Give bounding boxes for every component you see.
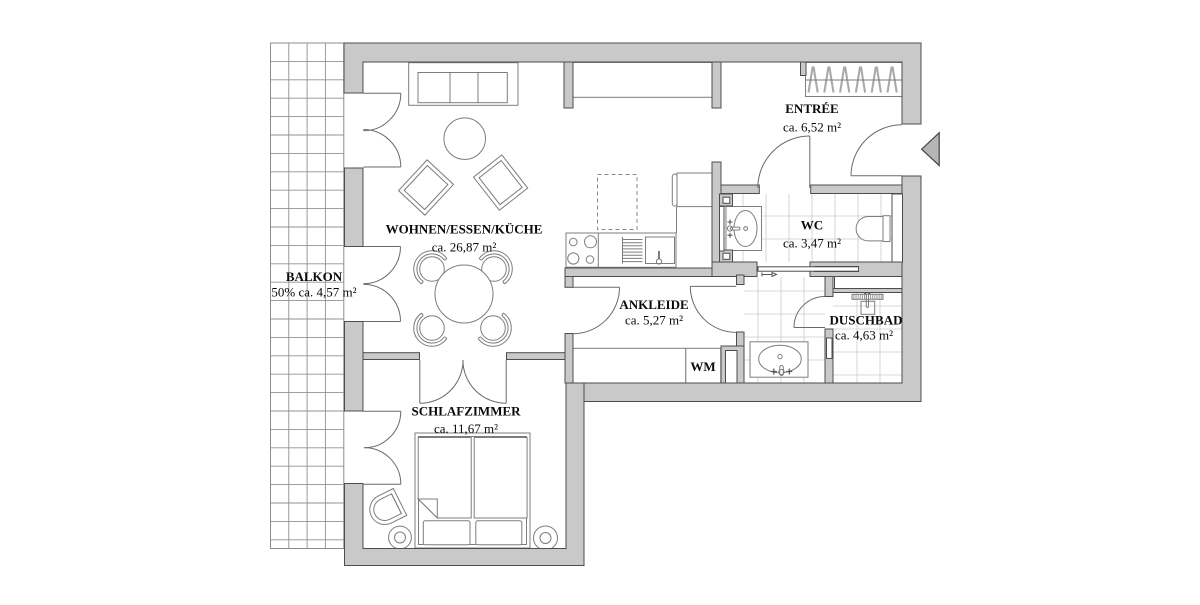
svg-text:ca. 6,52 m²: ca. 6,52 m² (783, 120, 841, 135)
svg-text:ca. 11,67 m²: ca. 11,67 m² (434, 421, 498, 436)
svg-text:50% ca. 4,57 m²: 50% ca. 4,57 m² (271, 285, 356, 300)
svg-text:ca. 5,27 m²: ca. 5,27 m² (625, 313, 683, 328)
svg-text:WOHNEN/ESSEN/KÜCHE: WOHNEN/ESSEN/KÜCHE (386, 222, 543, 237)
svg-text:SCHLAFZIMMER: SCHLAFZIMMER (411, 404, 521, 419)
svg-text:WM: WM (690, 359, 715, 374)
svg-text:ANKLEIDE: ANKLEIDE (619, 297, 688, 312)
svg-text:WC: WC (801, 218, 823, 233)
svg-text:BALKON: BALKON (286, 269, 343, 284)
svg-text:ca. 3,47 m²: ca. 3,47 m² (783, 236, 841, 251)
svg-text:DUSCHBAD: DUSCHBAD (830, 313, 903, 328)
svg-text:ENTRÉE: ENTRÉE (785, 101, 838, 116)
svg-text:ca. 26,87 m²: ca. 26,87 m² (432, 240, 497, 255)
svg-text:ca. 4,63 m²: ca. 4,63 m² (835, 328, 893, 343)
